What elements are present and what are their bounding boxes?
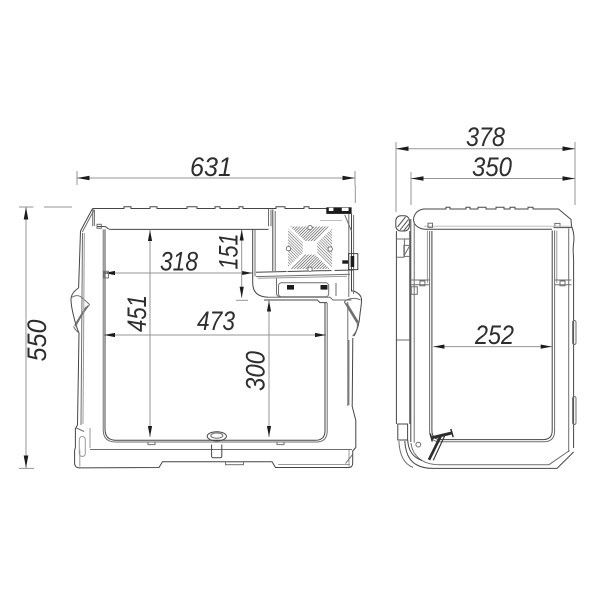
svg-text:378: 378 [466, 122, 505, 152]
svg-text:151: 151 [214, 234, 244, 270]
svg-text:318: 318 [160, 247, 198, 277]
svg-text:350: 350 [472, 152, 512, 182]
svg-text:550: 550 [22, 320, 52, 362]
svg-text:300: 300 [241, 351, 271, 391]
svg-text:252: 252 [474, 320, 514, 350]
svg-text:473: 473 [197, 306, 235, 336]
svg-text:631: 631 [190, 152, 232, 182]
svg-text:451: 451 [122, 295, 152, 332]
